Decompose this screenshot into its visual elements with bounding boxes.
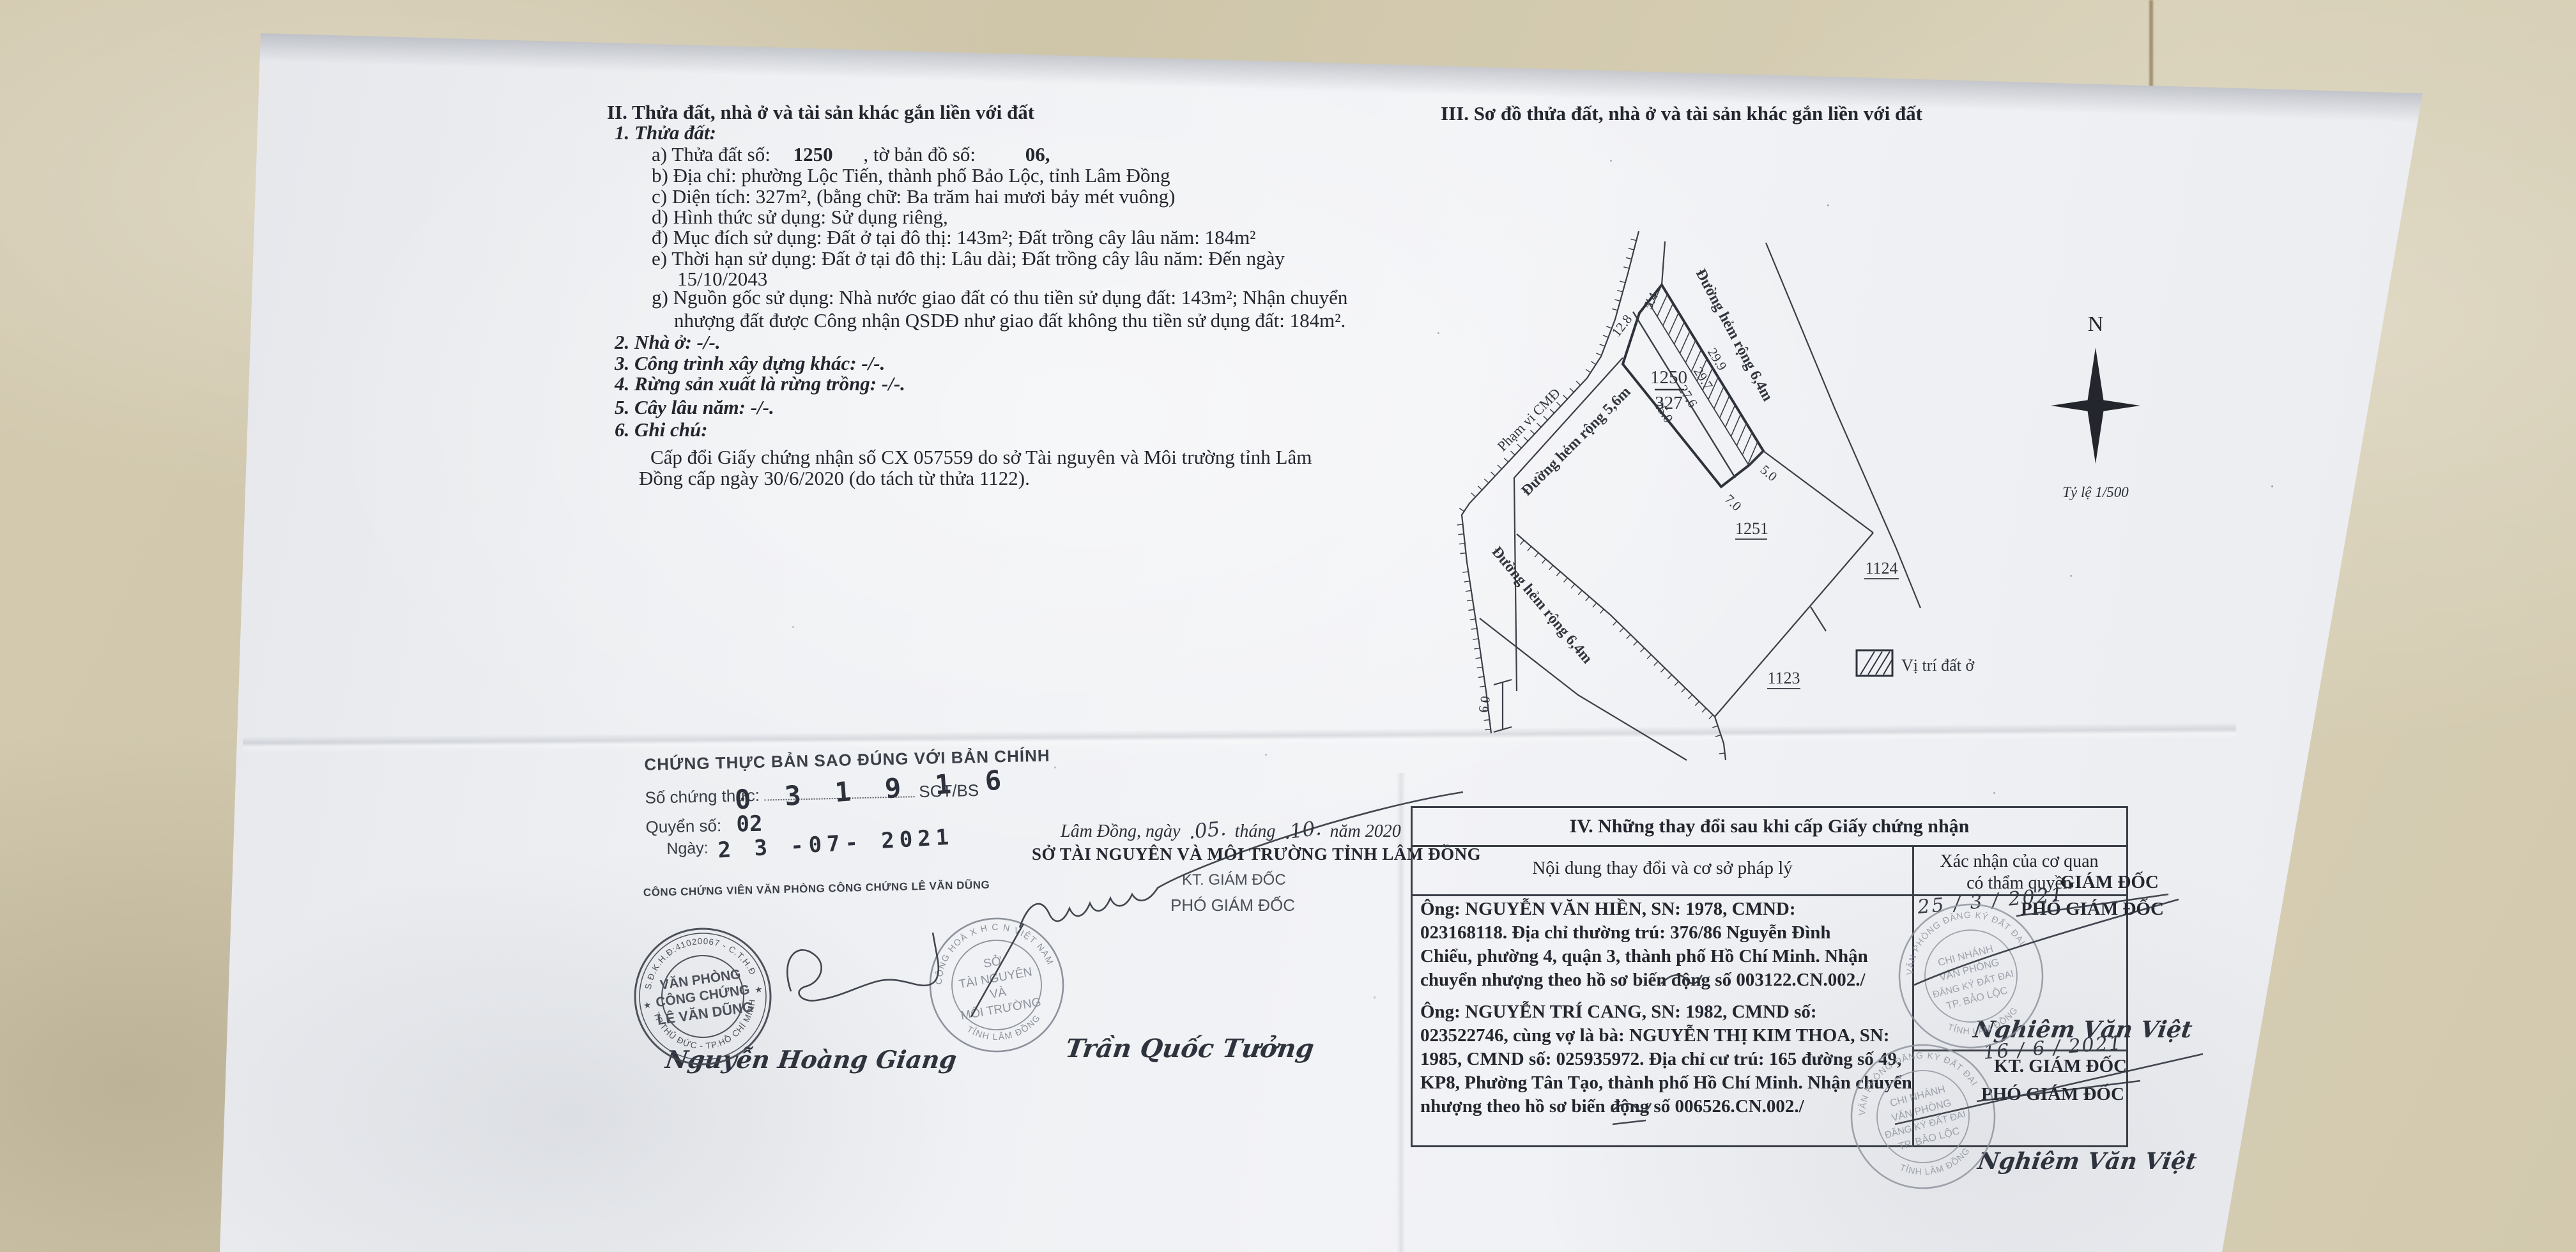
map-scale-label: Tỷ lệ 1/500 xyxy=(2062,484,2129,500)
compass-rose-icon: N xyxy=(2051,312,2140,464)
compass-north-label: N xyxy=(2088,312,2104,336)
plot-diagram-and-stamps: N Tỷ lệ 1/500 Ph xyxy=(0,0,2576,1252)
plot-1251-label: 1251 xyxy=(1735,519,1768,538)
conf2-strikethrough xyxy=(1977,1081,2140,1101)
diagram-labels: Phạm vi CMĐ Đường hẻm rộng 5,6m Đường hẻ… xyxy=(1475,266,1898,714)
registry-stamp1-arc-top: VĂN PHÒNG ĐĂNG KÝ ĐẤT ĐAI xyxy=(1892,896,2029,978)
notary-signature-stroke xyxy=(787,933,939,1001)
pham-vi-cmd-label: Phạm vi CMĐ xyxy=(1494,385,1563,454)
legend-label: Vị trí đất ở xyxy=(1901,656,1975,675)
registry-round-stamp-1: VĂN PHÒNG ĐĂNG KÝ ĐẤT ĐAI TỈNH LÂM ĐỒNG … xyxy=(1883,889,2058,1064)
tile-groove xyxy=(2149,0,2153,91)
entry2-handwritten-tail xyxy=(1611,1103,1651,1124)
scanned-land-certificate-photo: II. Thửa đất, nhà ở và tài sản khác gắn … xyxy=(0,0,2576,1252)
dim-29-9: 29.9 xyxy=(1705,345,1730,373)
registry-round-stamp-2: VĂN PHÒNG ĐĂNG KÝ ĐẤT ĐAI TỈNH LÂM ĐỒNG … xyxy=(1836,1029,2011,1204)
issuer-stamp-line1: SỞ xyxy=(983,954,1003,971)
plot-number-label: 1250 xyxy=(1650,367,1687,388)
dim-5-0: 5.0 xyxy=(1758,462,1781,484)
star-icon: ★ xyxy=(754,985,763,996)
dim-7-0: 7.0 xyxy=(1722,491,1745,514)
issuer-stamp-line3: VÀ xyxy=(989,986,1008,1002)
dimension-arrow-6m xyxy=(1494,680,1512,732)
dim-6-0: 6.0 xyxy=(1475,695,1493,714)
issuer-signature-stroke xyxy=(1020,792,1463,928)
svg-text:VĂN PHÒNG ĐĂNG KÝ ĐẤT ĐAI: VĂN PHÒNG ĐĂNG KÝ ĐẤT ĐAI xyxy=(1892,896,2029,978)
plot-1123-label: 1123 xyxy=(1767,669,1800,687)
svg-text:VĂN PHÒNG ĐĂNG KÝ ĐẤT ĐAI: VĂN PHÒNG ĐĂNG KÝ ĐẤT ĐAI xyxy=(1844,1036,1981,1118)
conf1-strikethrough xyxy=(2016,894,2168,916)
issuer-round-stamp: CỘNG HOÀ X H C N VIỆT NAM TỈNH LÂM ĐỒNG … xyxy=(920,908,1074,1062)
legend: Vị trí đất ở xyxy=(1857,650,1975,676)
notary-round-stamp: S.Đ.K.H.Đ:41020067 - C.T.H.Đ TP.THỦ ĐỨC … xyxy=(626,920,779,1073)
entry1-handwritten-tail xyxy=(1661,975,1702,984)
certificate-paper: II. Thửa đất, nhà ở và tài sản khác gắn … xyxy=(0,0,2576,1252)
road-6-4m-bottom-label: Đường hẻm rộng 6,4m xyxy=(1488,544,1595,667)
plot-1124-label: 1124 xyxy=(1865,559,1897,577)
registry-stamp2-arc-top: VĂN PHÒNG ĐĂNG KÝ ĐẤT ĐAI xyxy=(1844,1036,1981,1118)
star-icon: ★ xyxy=(643,1000,652,1011)
plot-1250-outline xyxy=(1623,285,1763,487)
